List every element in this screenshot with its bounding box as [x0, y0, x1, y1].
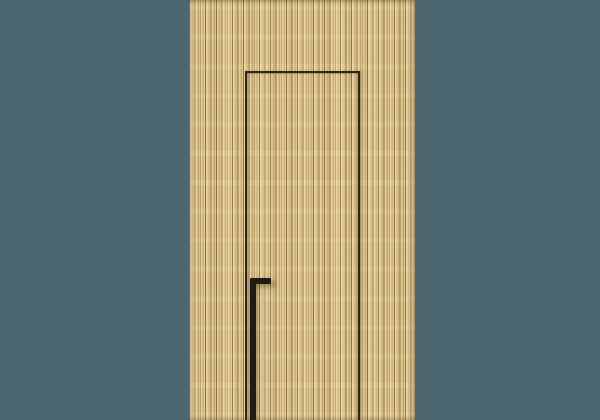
- door-leaf: [247, 73, 358, 420]
- door-gap-right: [358, 71, 360, 420]
- door-gap-top: [245, 71, 360, 73]
- wood-slat-panel: [189, 0, 415, 420]
- door-gap-left: [245, 71, 247, 420]
- scene: [0, 0, 600, 420]
- door-handle-bar: [250, 282, 256, 420]
